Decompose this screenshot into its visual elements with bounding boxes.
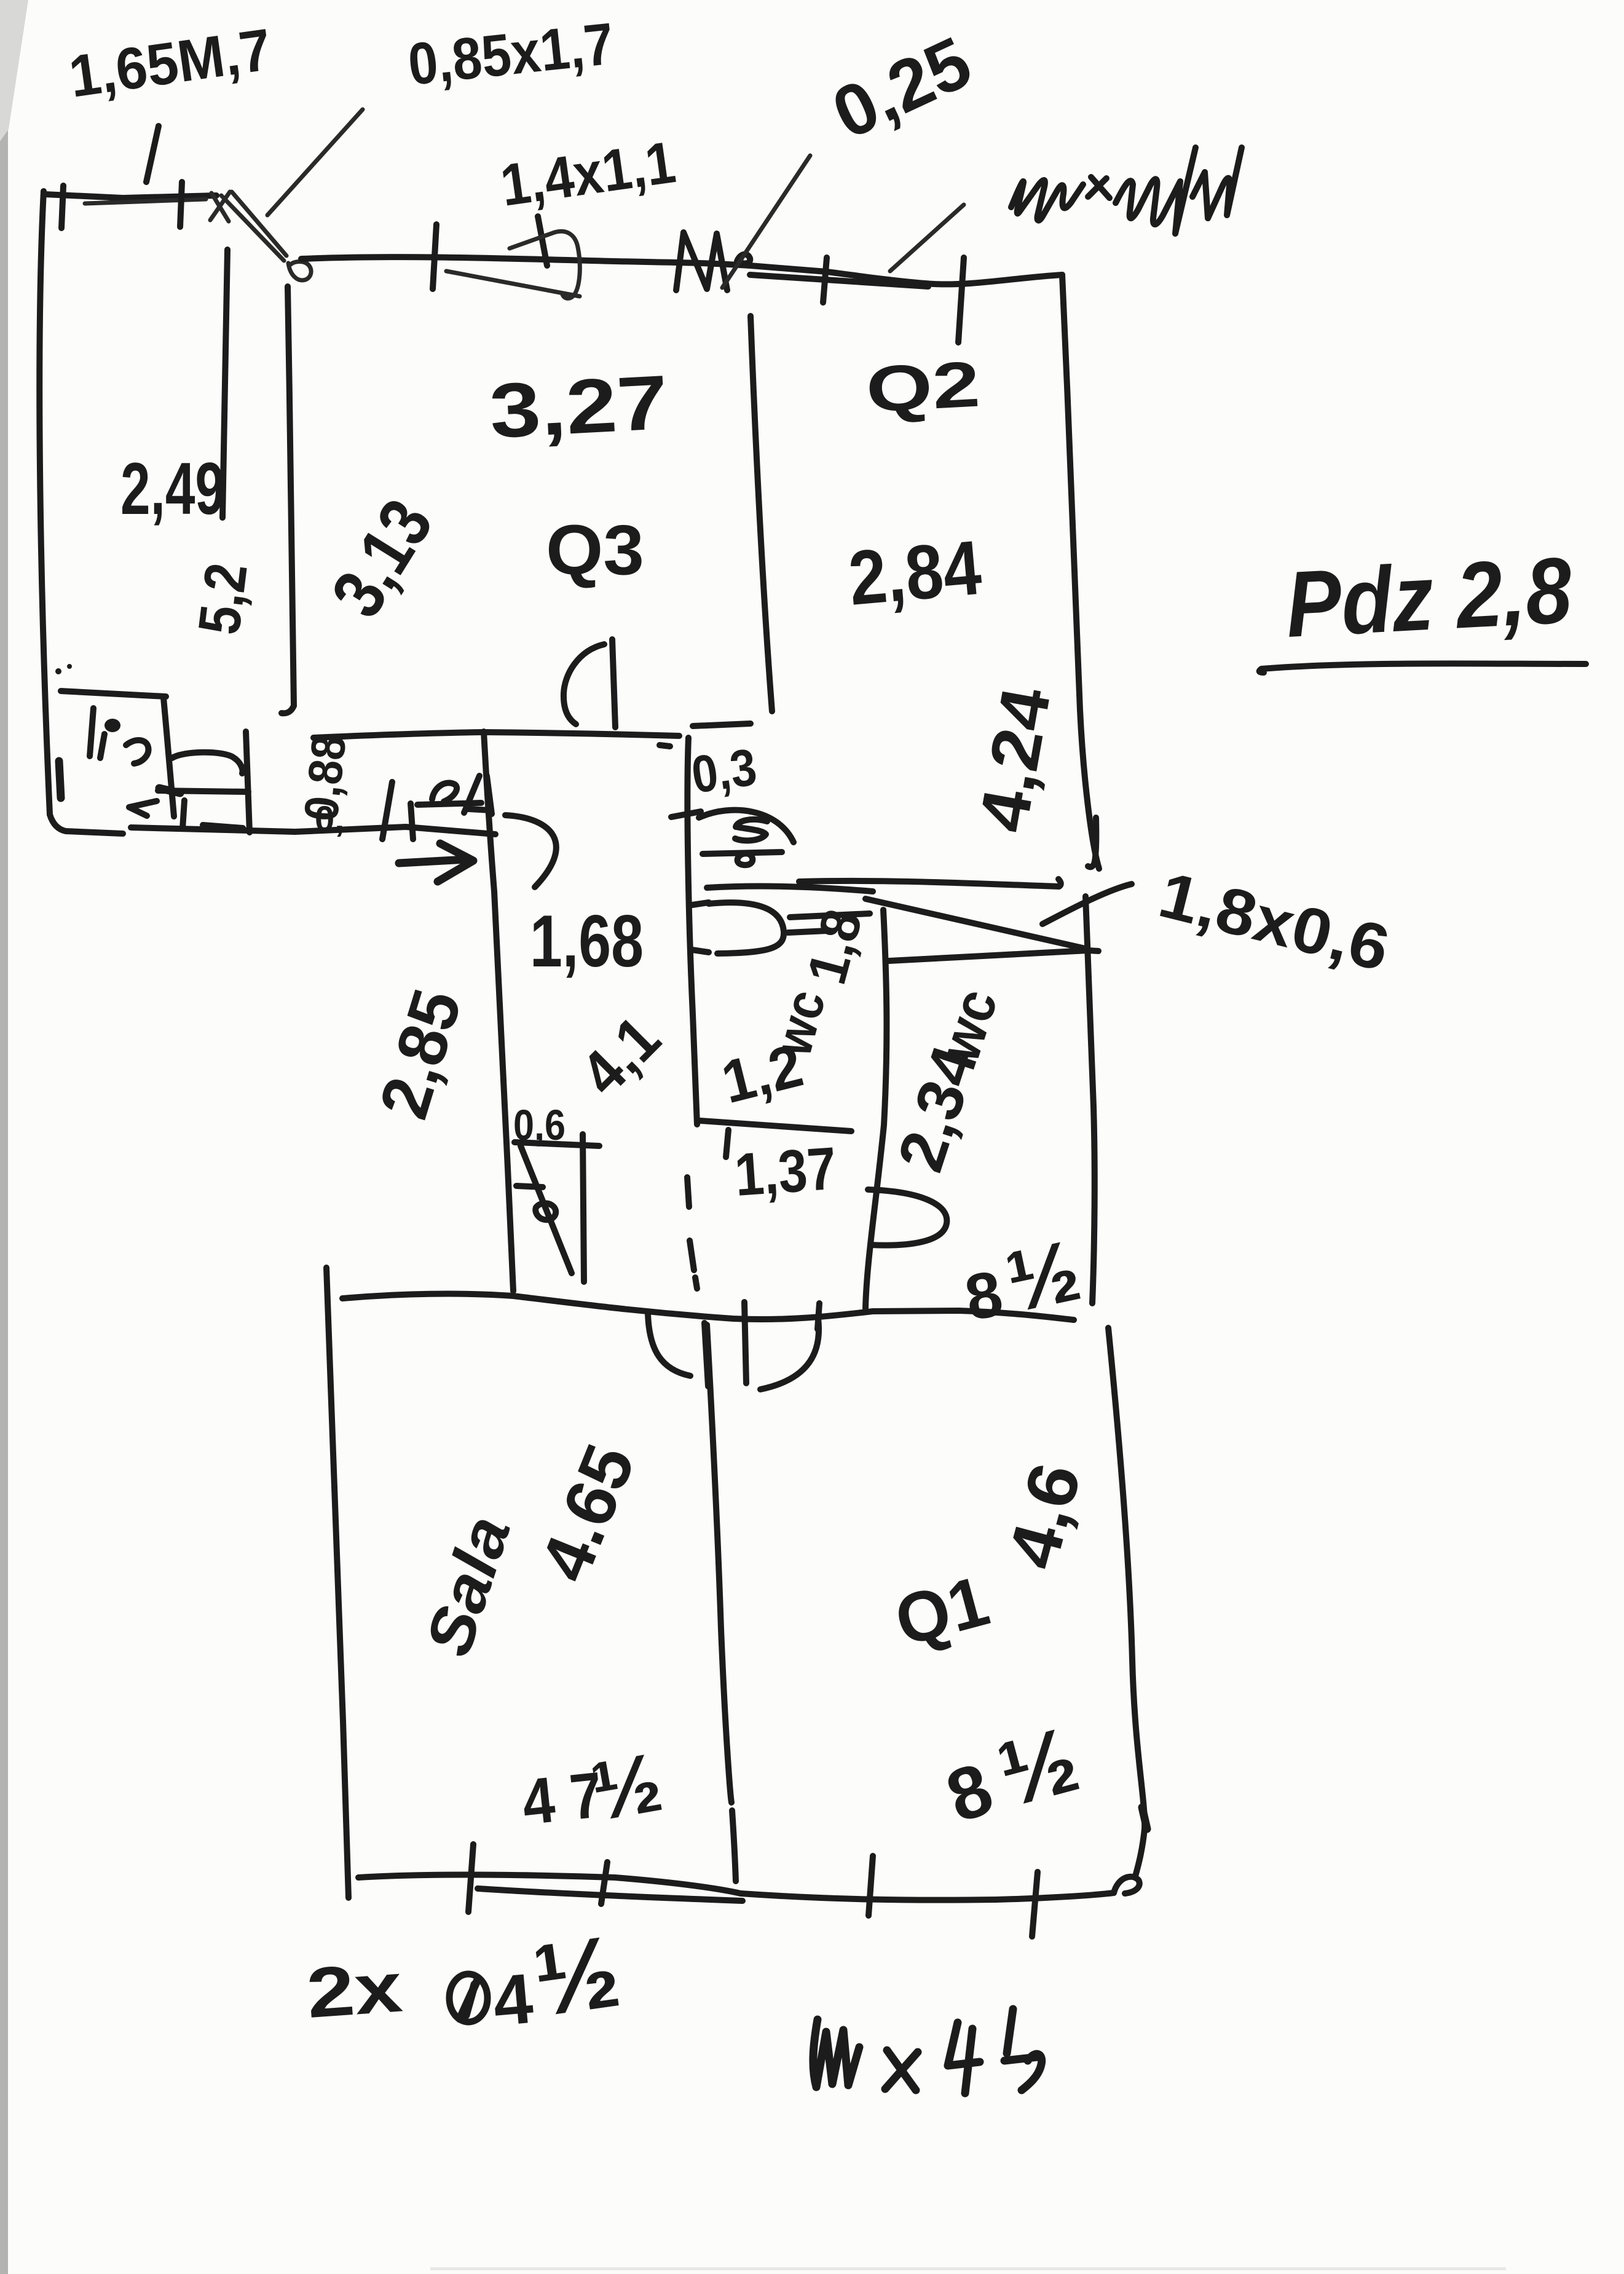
svg-text:2,84: 2,84 [845,525,984,622]
svg-text:0,3: 0,3 [688,738,760,805]
svg-text:Pdz 2,8: Pdz 2,8 [1283,538,1575,657]
svg-text:5,2: 5,2 [186,559,260,638]
svg-text:3,27: 3,27 [487,360,670,454]
svg-text:2,49: 2,49 [120,448,225,530]
svg-text:Q2: Q2 [864,348,982,426]
svg-text:Q3: Q3 [546,511,644,590]
svg-text:½: ½ [527,1914,626,2037]
svg-text:1,37: 1,37 [733,1134,838,1209]
svg-text:1,68: 1,68 [530,900,644,982]
svg-text:4: 4 [490,1959,536,2041]
svg-text:2x: 2x [304,1948,405,2033]
svg-text:0,88: 0,88 [293,732,356,823]
